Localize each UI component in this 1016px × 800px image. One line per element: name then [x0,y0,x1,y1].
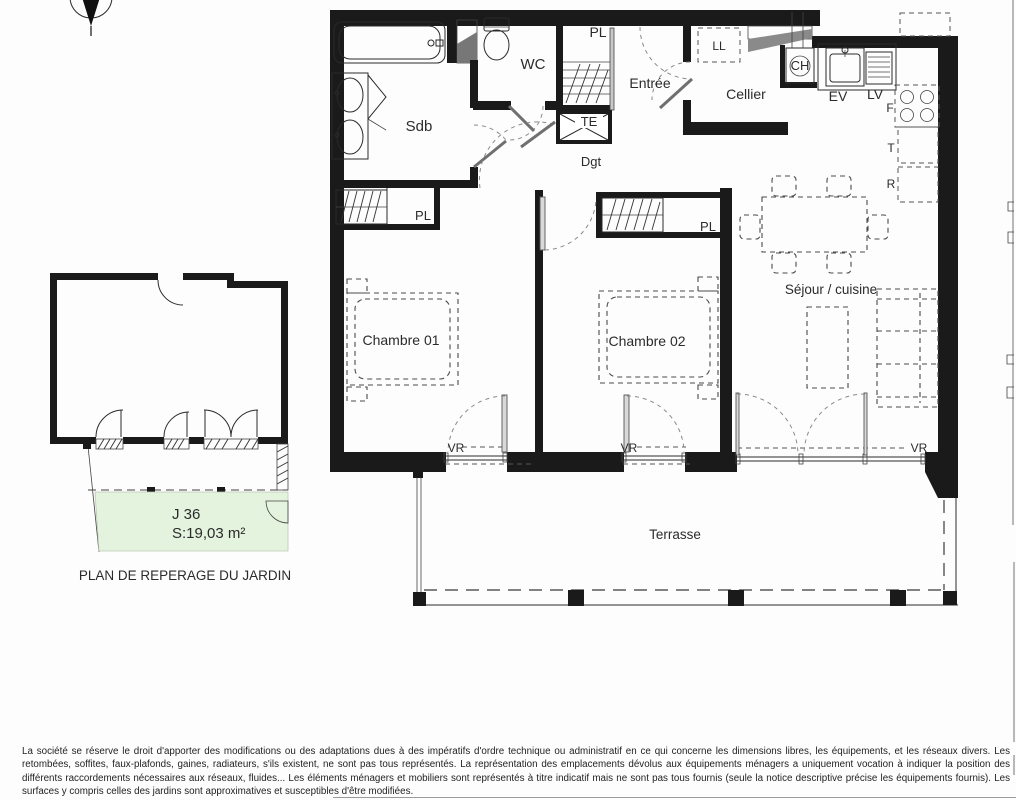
label-chambre-02: Chambre 02 [608,333,685,349]
label-chambre-01: Chambre 01 [362,332,439,348]
label-vr-ch2: VR [621,441,638,455]
kitchen-sink [826,47,864,86]
french-door-sejour [736,393,925,464]
label-dgt: Dgt [581,154,602,169]
garden-mini-plan: J 36 S:19,03 m² PLAN DE REPERAGE DU JARD… [50,273,291,583]
mini-plan-door-sills [96,439,258,449]
coffee-table [807,307,848,388]
dining-table [740,176,888,273]
label-ll: LL [712,39,726,53]
room-labels: Sdb WC PL TE Entrée Cellier LL CH EV LV … [362,24,927,455]
fridge-zone [898,167,938,202]
label-vr-ch1: VR [448,441,465,455]
sheet-frame [333,0,1016,798]
label-vr-sejour: VR [911,441,928,455]
label-lv: LV [867,86,884,102]
garden-area-label: S:19,03 m² [172,525,245,542]
entry-closet [563,62,610,103]
bathtub [334,22,445,63]
label-te: TE [581,114,598,129]
floor-plan-sheet: Terrasse [0,0,1016,800]
label-ev: EV [829,88,848,104]
label-four: F [886,101,893,115]
label-cellier: Cellier [726,86,766,102]
label-sejour: Séjour / cuisine [785,282,877,297]
label-sdb: Sdb [406,118,433,135]
label-worktop: T [887,141,895,155]
dish-drainer [866,52,892,84]
bathroom-fixtures [332,18,509,159]
garden-lot-label: J 36 [172,506,200,523]
label-ch: CH [791,58,810,73]
garden-caption: PLAN DE REPERAGE DU JARDIN [79,568,291,583]
terrace-label: Terrasse [649,527,701,542]
terrace: Terrasse [413,472,958,606]
compass-north-icon [70,0,112,36]
label-pl-ch2: PL [700,219,716,234]
label-entree: Entrée [629,75,670,91]
sofa [877,289,938,407]
label-pl-ch1: PL [415,208,431,223]
label-wc: WC [521,56,546,73]
label-fridge: R [887,177,896,191]
floor-plan-drawing: Terrasse [0,0,1016,800]
legal-disclaimer: La société se réserve le droit d'apporte… [22,745,1010,799]
label-pl-entry: PL [589,24,606,40]
worktop-zone [898,127,938,163]
cooktop [895,85,939,127]
